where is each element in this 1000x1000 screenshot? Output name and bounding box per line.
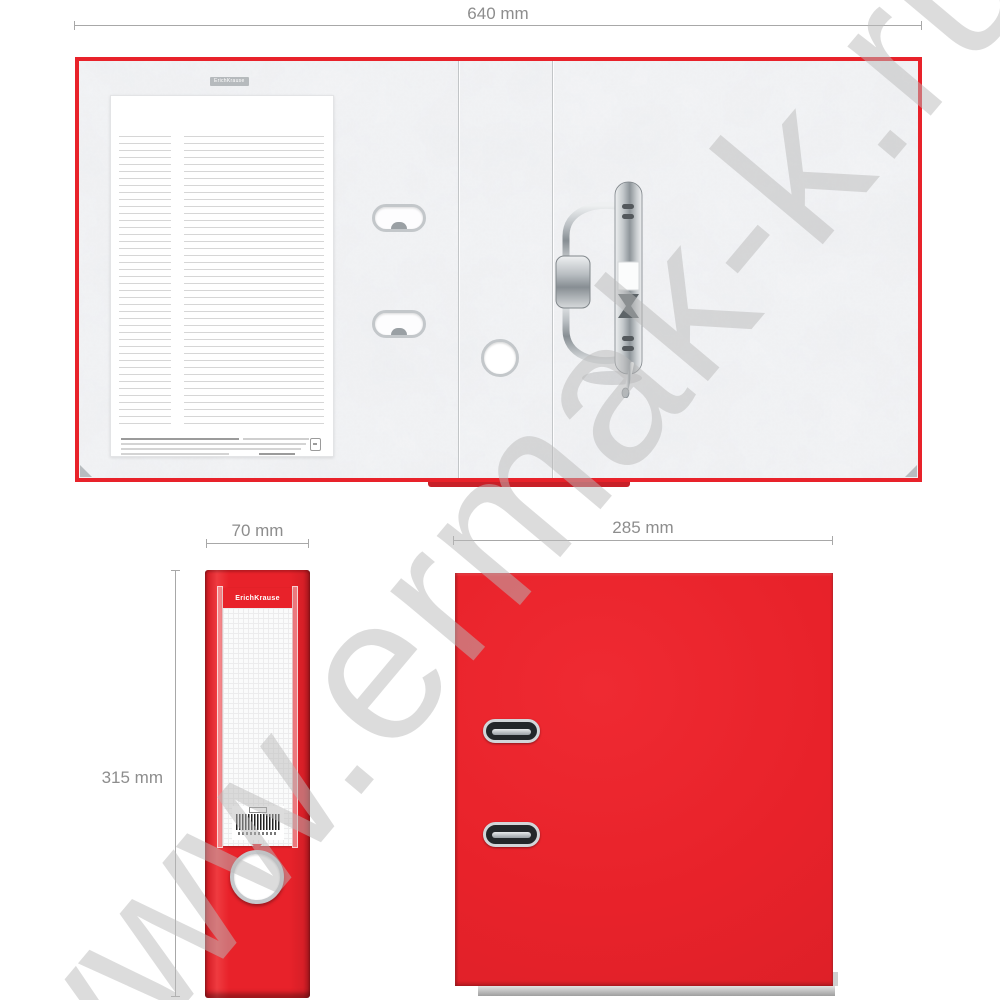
corner-protector [80,465,92,477]
brand-logo-band: ErichKrause [223,588,292,608]
front-cover-view [455,573,833,986]
spine-fold-line [458,61,459,478]
cover-slot [483,719,540,743]
cover-width-dimension-line [453,540,833,541]
certification-icon [310,438,321,451]
open-width-dimension-line [74,25,922,26]
cover-slot [483,822,540,847]
open-width-dimension-label: 640 mm [74,4,922,24]
fine-print-block [121,438,323,454]
binder-slot [372,310,426,338]
label-holder-rail [292,586,298,848]
open-binder-view: ErichKrause [75,57,922,482]
spine-view: ErichKrause [205,570,310,998]
ruled-lines-main [184,130,324,426]
ring-tip [391,222,407,229]
binder-slot [372,204,426,232]
ring-tip [391,328,407,335]
dimension-tick [921,21,922,30]
document-sheet [110,95,334,457]
spine-width-dimension-label: 70 mm [196,521,319,541]
ruled-lines-index-column [119,130,171,426]
barcode-icon [232,806,284,840]
website-microtext [259,453,295,455]
spine-width-dimension-line [206,543,309,544]
pages-corner-edge [833,972,838,986]
height-dimension-label: 315 mm [88,768,163,788]
product-diagram: 640 mm ErichKrause [0,0,1000,1000]
dimension-tick [74,21,75,30]
corner-protector [905,465,917,477]
cover-width-dimension-label: 285 mm [453,518,833,538]
spine-finger-hole [481,339,519,377]
ring-gleam [492,832,531,838]
ring-gleam [492,729,531,735]
spine-label-holder: ErichKrause [217,586,298,848]
brand-logo-badge: ErichKrause [210,77,249,86]
spine-finger-hole [230,850,284,904]
height-dimension-line [175,570,176,997]
pages-bottom-edge [478,986,835,996]
lever-arch-mechanism-icon [552,178,662,398]
spine-label: ErichKrause [223,588,292,846]
